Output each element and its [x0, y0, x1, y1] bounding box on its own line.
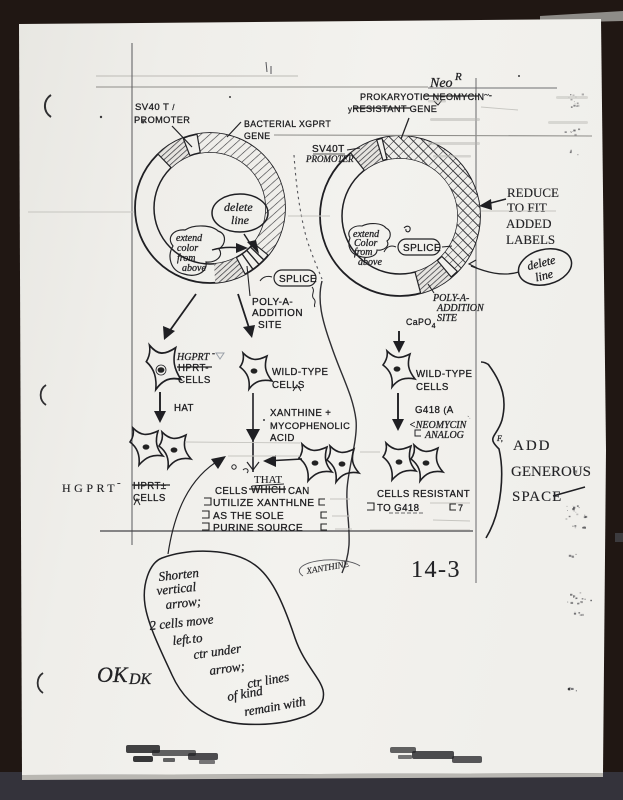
- svg-text:F,: F,: [496, 434, 503, 443]
- svg-text:CELLS: CELLS: [133, 493, 166, 504]
- svg-text:ADD: ADD: [513, 438, 552, 454]
- svg-text:GENE: GENE: [244, 131, 271, 141]
- svg-text:PROMOTER: PROMOTER: [134, 115, 190, 125]
- svg-text:PURINE SOURCE: PURINE SOURCE: [213, 523, 303, 534]
- svg-text:~-: ~-: [484, 90, 492, 100]
- svg-text:yRESISTANT GENE: yRESISTANT GENE: [348, 104, 437, 114]
- svg-text:Neo: Neo: [429, 76, 453, 91]
- svg-text:line: line: [231, 213, 250, 227]
- svg-text:LABELS: LABELS: [506, 232, 555, 247]
- svg-text:SITE: SITE: [437, 313, 457, 324]
- svg-text:TO G418: TO G418: [377, 503, 419, 514]
- svg-text:7: 7: [458, 503, 463, 513]
- svg-text:ANALOG: ANALOG: [424, 430, 464, 441]
- svg-text:HPRT±: HPRT±: [133, 481, 167, 492]
- svg-text:BACTERIAL XGPRT: BACTERIAL XGPRT: [244, 119, 331, 129]
- svg-text:CELLS: CELLS: [178, 375, 211, 386]
- svg-text:CELLS RESISTANT: CELLS RESISTANT: [377, 489, 470, 500]
- svg-text:PROKARYOTIC NEOMYCIN: PROKARYOTIC NEOMYCIN: [360, 92, 484, 102]
- svg-text:OK: OK: [97, 662, 129, 687]
- svg-text:HPRT-: HPRT-: [178, 363, 209, 374]
- svg-text:POLY-A-: POLY-A-: [252, 297, 293, 308]
- svg-text:TO FIT: TO FIT: [507, 200, 547, 215]
- svg-text:SPACE: SPACE: [512, 489, 562, 505]
- svg-text:CAN: CAN: [288, 486, 310, 497]
- svg-text:14-3: 14-3: [411, 557, 461, 583]
- svg-text:G418 (A: G418 (A: [415, 405, 454, 416]
- svg-text:HGPRT: HGPRT: [176, 352, 211, 363]
- svg-text:CELLS: CELLS: [416, 382, 449, 393]
- svg-text:REDUCE: REDUCE: [507, 185, 559, 200]
- svg-text:UTILIZE XANTHLNE: UTILIZE XANTHLNE: [213, 498, 315, 509]
- svg-text:XANTHINE +: XANTHINE +: [270, 408, 331, 419]
- svg-text:PROMOTER: PROMOTER: [305, 154, 354, 164]
- svg-text:ADDED: ADDED: [506, 216, 552, 231]
- svg-text:HGPRT: HGPRT: [62, 481, 118, 495]
- svg-text:-: -: [212, 348, 215, 358]
- svg-text:GENEROUS: GENEROUS: [511, 464, 591, 480]
- svg-text:R: R: [454, 71, 462, 83]
- svg-text:SV40 T/: SV40 T/: [135, 102, 175, 113]
- svg-text:SPLICE: SPLICE: [279, 274, 317, 285]
- svg-text:-: -: [117, 477, 121, 489]
- svg-text:ADDITION: ADDITION: [252, 308, 303, 319]
- svg-text:WHICH: WHICH: [251, 485, 286, 496]
- svg-text:above: above: [358, 257, 382, 268]
- svg-text:CELLS: CELLS: [215, 486, 248, 497]
- svg-text:WILD-TYPE: WILD-TYPE: [416, 369, 472, 380]
- svg-text:delete: delete: [224, 200, 253, 214]
- svg-text:WILD-TYPE: WILD-TYPE: [272, 367, 328, 378]
- svg-text:AS THE SOLE: AS THE SOLE: [213, 511, 284, 522]
- svg-text:SITE: SITE: [258, 320, 282, 331]
- svg-text:DK: DK: [128, 671, 153, 688]
- svg-text:above: above: [182, 263, 206, 274]
- svg-text:HAT: HAT: [174, 403, 194, 414]
- svg-text:SPLICE: SPLICE: [403, 243, 441, 254]
- svg-text:MYCOPHENOLIC: MYCOPHENOLIC: [270, 421, 350, 431]
